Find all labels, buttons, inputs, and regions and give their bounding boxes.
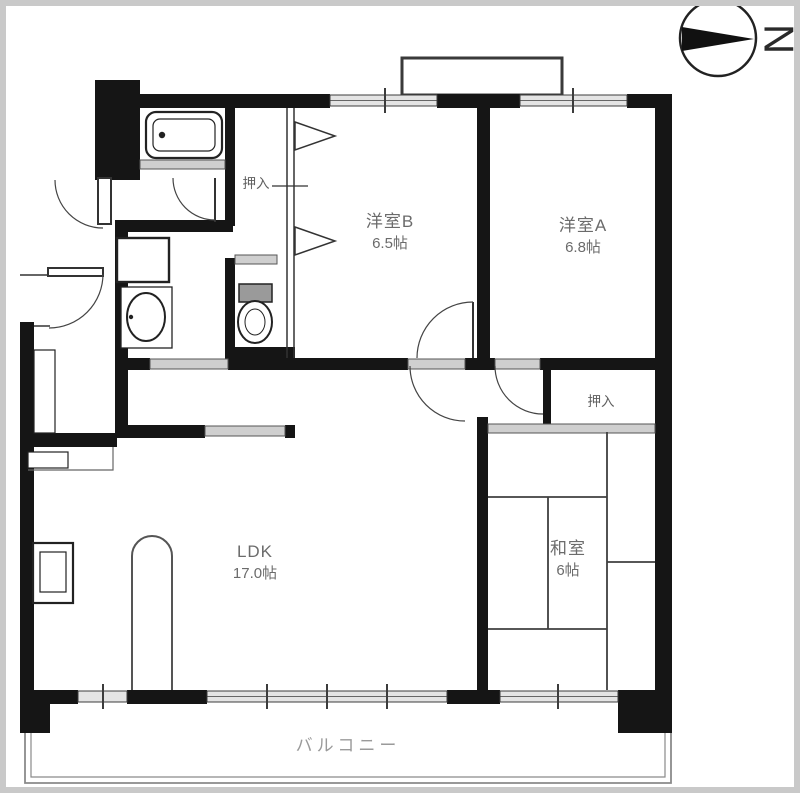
compass-letter: N xyxy=(756,24,800,54)
room-size-washitsu: 6帖 xyxy=(556,562,579,579)
fold-door-arrow-top xyxy=(295,122,335,150)
room-label-ldk: LDK xyxy=(237,542,273,561)
bath-slider xyxy=(140,160,225,169)
interior-walls xyxy=(20,94,672,690)
entry-step xyxy=(28,447,113,470)
room-label-western-a: 洋室A xyxy=(559,216,607,235)
room-size-ldk: 17.0帖 xyxy=(233,565,277,582)
door2-frame xyxy=(495,359,540,369)
floorplan-svg: バルコニー xyxy=(0,0,800,793)
fusuma-slider xyxy=(488,424,655,433)
washroom-slider xyxy=(150,359,228,369)
room-label-washitsu: 和室 xyxy=(550,539,586,558)
entrance-closet-door xyxy=(48,268,103,328)
shoe-cabinet xyxy=(34,350,55,433)
balcony-label: バルコニー xyxy=(296,736,401,755)
toilet-slider xyxy=(235,255,277,264)
sliding-doors xyxy=(140,160,655,436)
closet-label-upper: 押入 xyxy=(243,176,270,191)
hall-door-west xyxy=(410,366,465,421)
room-label-western-b: 洋室B xyxy=(366,212,414,231)
balcony: バルコニー xyxy=(25,733,671,783)
toilet xyxy=(238,284,272,343)
closet-label-lower: 押入 xyxy=(588,394,616,409)
room-size-western-a: 6.8帖 xyxy=(565,239,601,256)
washing-machine-pan xyxy=(117,238,169,282)
fixtures xyxy=(28,112,272,690)
corridor-slider xyxy=(205,426,285,436)
door1-frame xyxy=(408,359,465,369)
fold-door-arrow-bottom xyxy=(295,227,335,255)
kitchen-unit-inner xyxy=(40,552,66,592)
compass: N xyxy=(680,0,800,76)
bedroom-b-door xyxy=(417,302,473,358)
tatami-grid xyxy=(488,432,655,690)
room-size-western-b: 6.5帖 xyxy=(372,235,408,252)
hall-door-east xyxy=(495,366,543,414)
floorplan-page: バルコニー xyxy=(0,0,800,793)
washbasin xyxy=(121,287,172,348)
bathtub xyxy=(146,112,222,158)
top-bay-outline xyxy=(402,58,562,95)
entrance-door xyxy=(55,178,111,228)
kitchen-counter-arch xyxy=(132,536,172,690)
room-labels: 洋室B 6.5帖 洋室A 6.8帖 LDK 17.0帖 和室 6帖 押入 押入 xyxy=(233,176,615,582)
bath-door xyxy=(173,178,215,222)
